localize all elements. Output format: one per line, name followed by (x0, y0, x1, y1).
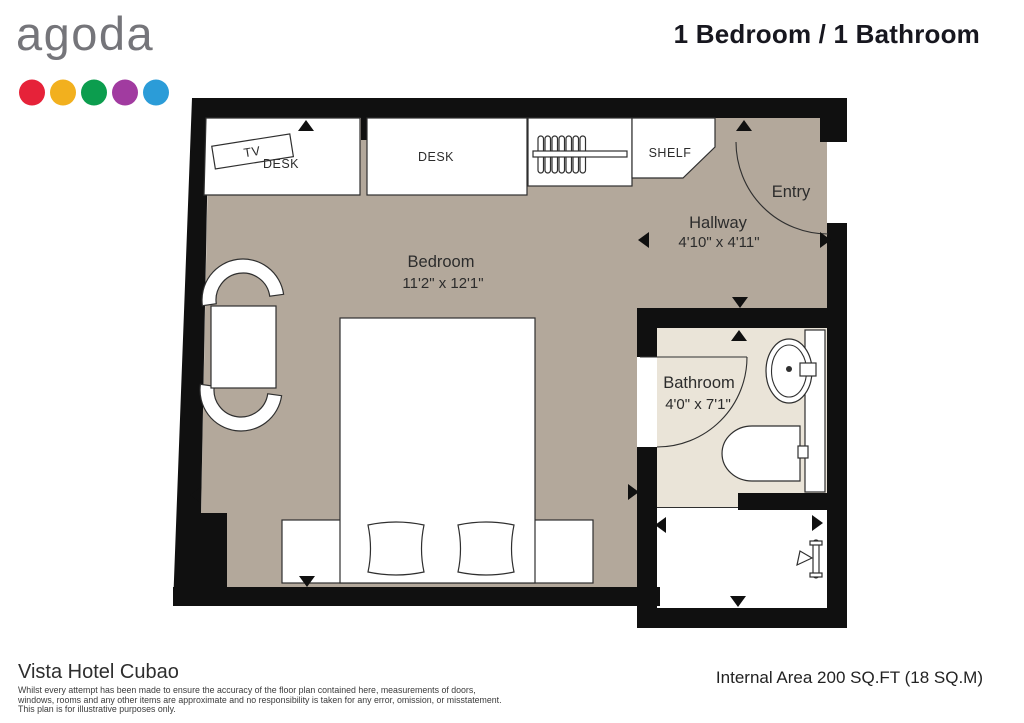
bathroom-dimensions: 4'0" x 7'1" (665, 396, 731, 413)
hallway-dimensions: 4'10" x 4'11" (678, 234, 759, 251)
shower-rail-cap (810, 573, 822, 577)
pillow (368, 522, 424, 575)
internal-area-text: Internal Area 200 SQ.FT (18 SQ.M) (716, 668, 983, 688)
bathroom-label: Bathroom (663, 374, 735, 392)
shower-head-icon (797, 551, 812, 565)
faucet-icon (800, 363, 816, 376)
toilet-flush-icon (798, 446, 808, 458)
table (211, 306, 276, 388)
floor-plan: TV DESK DESK SHELF (0, 0, 1024, 723)
desk-left-label: DESK (263, 157, 299, 171)
bedroom-label: Bedroom (408, 253, 475, 271)
sink-drain-icon (786, 366, 792, 372)
entry-door-opening (827, 142, 847, 223)
disclaimer-line: This plan is for illustrative purposes o… (18, 705, 502, 715)
desk-center-label: DESK (418, 150, 454, 164)
shelf-label: SHELF (649, 146, 692, 160)
clothes-rail (533, 151, 627, 157)
tv-label: TV (243, 144, 262, 161)
toilet (722, 426, 808, 481)
wardrobe (528, 118, 632, 186)
footer-left: Vista Hotel Cubao Whilst every attempt h… (18, 661, 502, 715)
entry-label: Entry (772, 183, 811, 201)
hallway-label: Hallway (689, 214, 748, 232)
disclaimer: Whilst every attempt has been made to en… (18, 686, 502, 715)
hotel-name: Vista Hotel Cubao (18, 661, 502, 683)
pillow (458, 522, 514, 575)
shower-rail-cap (810, 541, 822, 545)
bathroom-door-opening (637, 357, 657, 447)
toilet-bowl (722, 426, 800, 481)
bedroom-dimensions: 11'2" x 12'1" (402, 275, 483, 292)
shower-fixture (797, 540, 822, 578)
floorplan-page: agoda 1 Bedroom / 1 Bathroom TV DESK (0, 0, 1024, 723)
shower-rail-icon (813, 540, 819, 578)
